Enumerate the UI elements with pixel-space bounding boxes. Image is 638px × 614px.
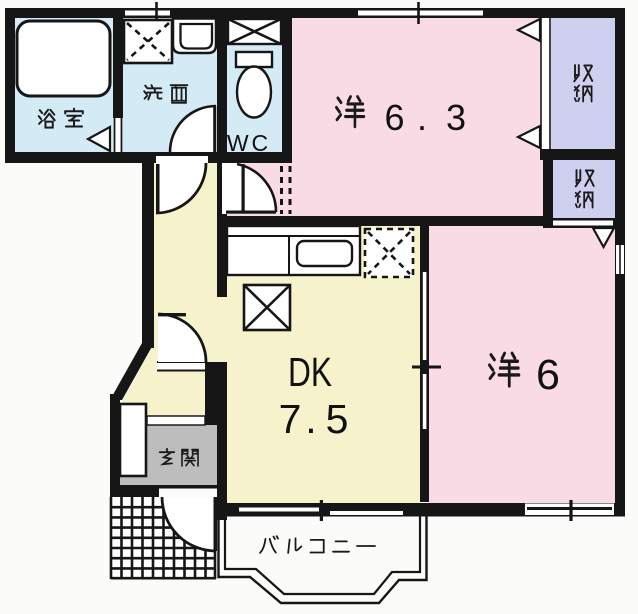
svg-text:7: 7 — [279, 396, 302, 442]
svg-text:.: . — [417, 97, 427, 138]
svg-text:3: 3 — [446, 97, 466, 138]
svg-text:5: 5 — [326, 396, 349, 442]
svg-text:.: . — [305, 396, 316, 442]
svg-text:WC: WC — [227, 130, 271, 156]
svg-text:6: 6 — [536, 351, 560, 399]
svg-text:6: 6 — [384, 97, 404, 138]
svg-text:DK: DK — [288, 349, 332, 395]
